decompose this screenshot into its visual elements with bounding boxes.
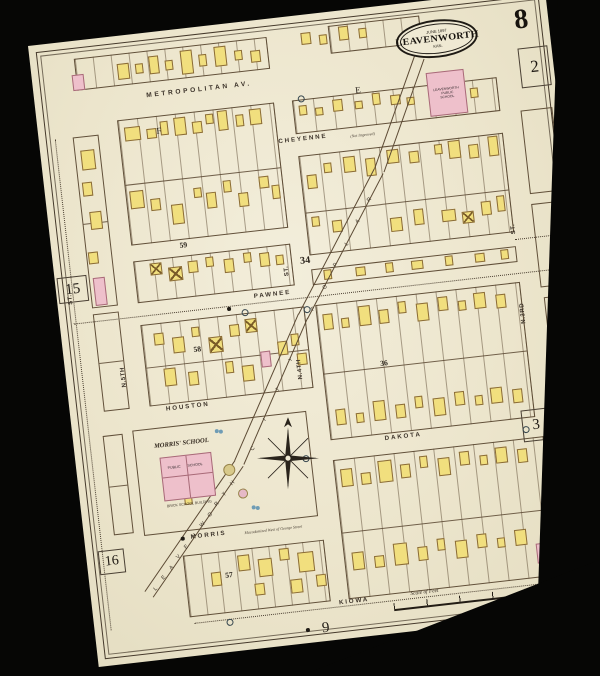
street-label-st-: ST. (509, 223, 517, 234)
frame-building (444, 255, 453, 266)
frame-building (315, 107, 324, 116)
frame-building (300, 32, 311, 45)
frame-building (500, 249, 509, 260)
frame-building (316, 574, 327, 587)
frame-building (171, 203, 185, 224)
frame-building (149, 262, 162, 275)
frame-building (225, 361, 234, 374)
map-content-layer: METROPOLITAN AV.CHEYENNE(Not Improved)PA… (28, 0, 600, 667)
frame-building (135, 63, 144, 74)
frame-building (163, 367, 177, 386)
frame-building (454, 391, 466, 406)
street-label-n-5th: N.5TH (119, 367, 128, 388)
city-block (544, 294, 583, 381)
frame-building (150, 198, 161, 211)
frame-building (213, 46, 227, 67)
frame-building (468, 144, 480, 159)
frame-building (168, 266, 183, 281)
lot-row-divider (99, 360, 123, 364)
frame-building (473, 292, 487, 309)
frame-building (517, 448, 529, 463)
frame-building (244, 318, 258, 333)
frame-building (89, 211, 103, 230)
frame-building (211, 572, 223, 587)
frame-building (455, 540, 469, 559)
frame-building (148, 55, 160, 74)
morris-school-building: PUBLIC SCHOOL (159, 452, 216, 502)
frame-building (476, 533, 488, 548)
frame-building (436, 538, 445, 551)
marginal-label-plate (545, 499, 579, 521)
frame-building (235, 114, 244, 127)
frame-building (82, 182, 94, 197)
street-label-metropolitan-av-: METROPOLITAN AV. (146, 80, 252, 99)
lot-row-divider (109, 485, 127, 488)
frame-building (413, 208, 425, 225)
frame-building (487, 135, 499, 156)
block-number-57: 57 (225, 570, 234, 579)
city-block (117, 103, 288, 246)
frame-building (470, 87, 479, 98)
frame-building (80, 149, 96, 170)
frame-building (129, 190, 145, 209)
lot-row-divider (324, 351, 527, 375)
city-block (93, 311, 130, 411)
frame-building (165, 60, 174, 71)
frame-building (377, 460, 393, 483)
public-school-building: LEAVENWORTH PUBLIC SCHOOL (426, 69, 469, 117)
frame-building (299, 105, 308, 116)
frame-building (206, 192, 218, 209)
lot-letter-F: F (156, 125, 162, 136)
frame-building (458, 300, 467, 311)
frame-building (490, 387, 504, 404)
frame-building (193, 187, 202, 198)
frame-building (358, 28, 367, 39)
frame-building (378, 309, 390, 324)
school-room-label: PUBLIC (167, 464, 180, 469)
sheet-number-dot (306, 628, 310, 632)
school-wall-line (185, 456, 191, 498)
public-school-label: SCHOOL (440, 95, 454, 98)
frame-building (279, 548, 290, 561)
frame-building (172, 336, 186, 353)
frame-building (447, 140, 461, 159)
frame-building (481, 201, 493, 216)
frame-building (372, 400, 386, 421)
hydrant-circle-icon (226, 618, 234, 626)
scanned-map-page: METROPOLITAN AV.CHEYENNE(Not Improved)PA… (0, 0, 600, 676)
brick-building (536, 542, 552, 563)
frame-building (495, 294, 507, 309)
frame-building (437, 296, 449, 311)
frame-building (238, 192, 250, 207)
street-label-st-: ST. (283, 265, 291, 276)
frame-building (512, 388, 524, 403)
frame-building (417, 546, 429, 561)
frame-building (191, 326, 200, 337)
frame-building (217, 110, 229, 131)
frame-building (514, 529, 528, 546)
adjacent-sheet-number-3: 3 (520, 407, 551, 442)
frame-building (351, 551, 365, 570)
frame-building (414, 396, 423, 409)
block-number-36: 36 (380, 358, 389, 367)
city-block (557, 389, 589, 444)
frame-building (258, 176, 269, 189)
city-block (531, 200, 572, 287)
city-block (103, 434, 134, 536)
frame-building (374, 555, 385, 568)
frame-building (462, 211, 475, 224)
frame-building (254, 583, 265, 596)
frame-building (434, 144, 443, 155)
map-dot-symbol (227, 307, 231, 311)
frame-building (494, 446, 508, 463)
frame-building (223, 258, 235, 273)
frame-building (356, 412, 365, 423)
frame-building (173, 117, 187, 136)
street-note: Macadamized West of George Street (244, 524, 302, 535)
lot-row-divider (125, 167, 280, 186)
frame-building (297, 551, 315, 573)
frame-building (188, 371, 200, 386)
map-dot-symbol (181, 536, 185, 540)
frame-building (311, 216, 320, 227)
frame-building (355, 266, 366, 276)
frame-building (259, 252, 271, 267)
city-block (298, 133, 514, 256)
frame-building (205, 256, 214, 267)
frame-building (441, 209, 456, 223)
block-number-34: 34 (299, 253, 311, 267)
frame-building (237, 554, 251, 571)
frame-building (341, 317, 350, 328)
frame-building (335, 408, 347, 425)
frame-building (459, 451, 471, 466)
frame-building (198, 54, 207, 67)
frame-building (258, 558, 274, 577)
frame-building (395, 404, 407, 419)
frame-building (397, 301, 406, 314)
brick-building (540, 562, 553, 575)
school-room-label: SCHOOL (187, 462, 203, 468)
frame-building (275, 254, 284, 265)
stamp-state: KAN. (433, 44, 443, 48)
frame-building (343, 156, 357, 173)
frame-building (358, 305, 372, 326)
frame-building (437, 457, 451, 476)
frame-building (117, 63, 131, 80)
street-note: (Not Improved) (350, 131, 375, 138)
map-sheet-paper: METROPOLITAN AV.CHEYENNE(Not Improved)PA… (28, 0, 600, 667)
adjacent-sheet-number-9: 9 (313, 617, 339, 640)
frame-building (474, 395, 483, 406)
frame-building (306, 174, 318, 189)
frame-building (408, 150, 419, 163)
frame-building (474, 253, 485, 263)
frame-building (88, 251, 99, 264)
frame-building (419, 455, 428, 468)
frame-building (433, 397, 447, 416)
compass-rose-icon (253, 417, 323, 493)
frame-building (229, 324, 240, 337)
brick-building (72, 74, 86, 91)
block-number-58: 58 (193, 344, 202, 353)
frame-building (338, 26, 350, 41)
frame-building (124, 126, 141, 142)
adjacent-sheet-number-2: 2 (517, 45, 551, 88)
frame-building (205, 114, 214, 125)
frame-building (223, 180, 232, 193)
frame-building (372, 93, 381, 106)
frame-building (249, 108, 263, 125)
frame-building (323, 162, 332, 173)
frame-building (332, 99, 343, 112)
brick-building (260, 351, 272, 368)
frame-building (393, 542, 409, 565)
frame-building (192, 121, 203, 134)
frame-building (243, 252, 252, 263)
frame-building (340, 468, 354, 487)
frame-building (400, 463, 412, 478)
frame-building (390, 217, 404, 232)
frame-building (497, 537, 506, 548)
frame-building (354, 101, 363, 110)
frame-building (250, 50, 261, 63)
block-number-59: 59 (179, 240, 188, 249)
frame-building (180, 50, 195, 75)
frame-building (319, 34, 328, 45)
lot-row-divider (306, 190, 509, 214)
frame-building (242, 365, 256, 382)
frame-building (385, 262, 394, 273)
lot-letter-E: E (355, 85, 362, 96)
frame-building (153, 333, 164, 346)
frame-building (411, 260, 424, 270)
street-label-cheyenne: CHEYENNE (278, 133, 328, 145)
frame-building (208, 336, 224, 353)
frame-building (496, 195, 506, 212)
street-label-pawnee: PAWNEE (253, 289, 291, 300)
frame-building (290, 578, 304, 593)
frame-building (416, 302, 430, 321)
street-label-n-3rd: N.3RD (518, 302, 527, 324)
frame-building (360, 472, 371, 485)
city-block (520, 107, 561, 194)
frame-building (234, 50, 243, 61)
frame-building (322, 313, 334, 330)
frame-building (187, 260, 198, 273)
frame-building (479, 455, 488, 466)
frame-building (271, 184, 281, 199)
